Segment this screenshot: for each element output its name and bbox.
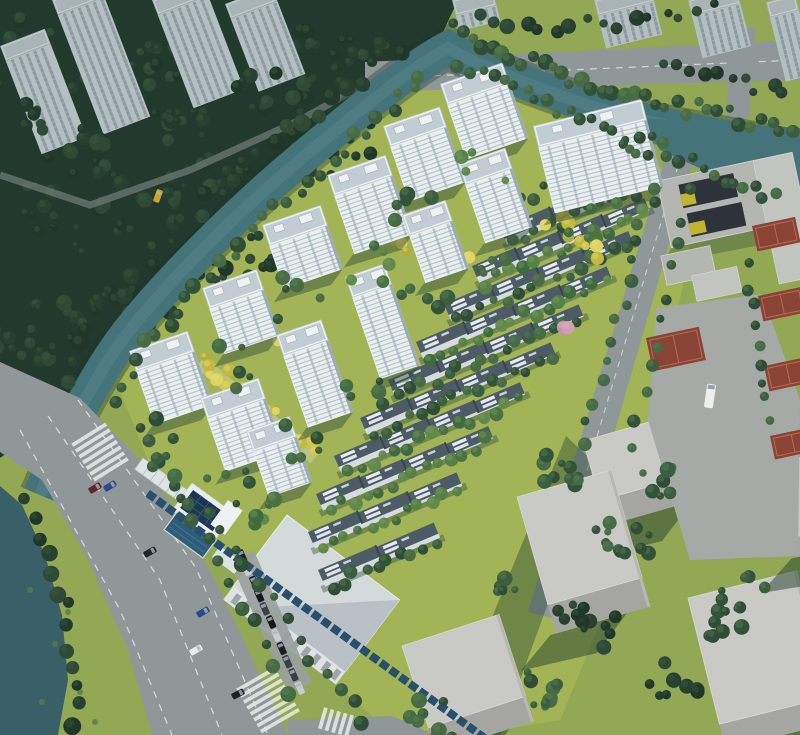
lily-pad <box>39 699 45 705</box>
lily-pad <box>52 641 58 647</box>
lily-pad <box>65 609 71 615</box>
lily-pad <box>27 587 33 593</box>
lily-pad <box>92 719 98 725</box>
aerial-rendering <box>0 0 800 735</box>
masterplan-rendering-canvas <box>0 0 800 735</box>
